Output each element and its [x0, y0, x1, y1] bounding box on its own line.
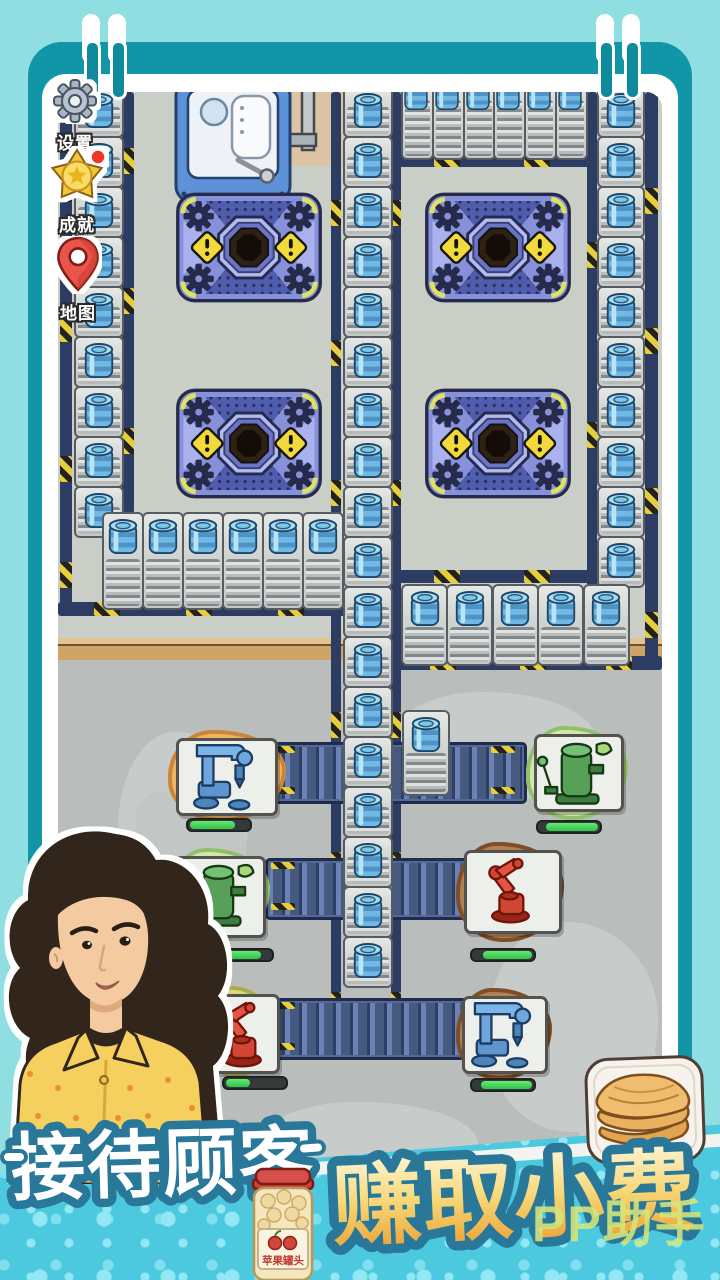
conveyor-rail — [645, 92, 658, 670]
hazard-stripe — [491, 787, 515, 794]
machine-drill-1[interactable] — [180, 736, 268, 814]
conveyor-plate — [597, 186, 645, 238]
crusher-3[interactable] — [422, 190, 574, 305]
plate-ridges — [306, 559, 340, 606]
barrel — [82, 440, 116, 482]
barrel — [604, 290, 638, 332]
barrel-icon — [351, 590, 385, 632]
barrel — [604, 140, 638, 182]
barrel-icon — [351, 92, 385, 132]
barrel-icon — [604, 490, 638, 532]
map-button[interactable]: 地图 — [40, 236, 116, 324]
barrel-icon — [351, 490, 385, 532]
hazard-stripe — [271, 903, 295, 910]
conveyor-plate — [182, 512, 224, 610]
conveyor-plate — [343, 186, 393, 238]
progress-fill — [546, 823, 598, 831]
barrel-icon — [464, 92, 492, 114]
barrel — [226, 516, 260, 558]
barrel — [351, 840, 385, 882]
hazard-stripe — [587, 422, 597, 448]
barrel-icon — [433, 92, 461, 114]
barrel-icon — [351, 440, 385, 482]
plate-ridges — [450, 627, 489, 662]
conveyor-plate — [343, 686, 393, 738]
barrel-icon — [146, 516, 180, 558]
barrel — [409, 714, 443, 756]
barrel-icon — [494, 92, 522, 114]
barrel-icon — [604, 440, 638, 482]
conveyor-plate — [597, 536, 645, 588]
conveyor-plate — [222, 512, 264, 610]
plate-ridges — [186, 559, 220, 606]
barrel — [351, 140, 385, 182]
conveyor-plate — [74, 336, 124, 388]
hazard-stripe — [434, 570, 460, 583]
hazard-stripe — [645, 328, 658, 354]
conveyor-plate — [597, 286, 645, 338]
barrel — [351, 240, 385, 282]
barrel-icon — [186, 516, 220, 558]
barrel — [544, 588, 578, 630]
conveyor-plate — [343, 886, 393, 938]
conveyor-plate — [492, 584, 539, 666]
barrel-icon — [351, 790, 385, 832]
machine-drill-2[interactable] — [458, 994, 546, 1072]
barrel — [351, 440, 385, 482]
barrel-icon — [525, 92, 553, 114]
progress-bar — [536, 820, 602, 834]
barrel-icon — [351, 740, 385, 782]
barrel-icon — [604, 190, 638, 232]
barrel-icon — [604, 290, 638, 332]
jar-label: 苹果罐头 — [262, 1254, 304, 1267]
machine-robot-1[interactable] — [466, 848, 554, 926]
conveyor-plate — [74, 436, 124, 488]
barrel-icon — [604, 240, 638, 282]
barrel — [604, 440, 638, 482]
barrel — [82, 390, 116, 432]
barrel — [351, 290, 385, 332]
conveyor-plate — [343, 536, 393, 588]
hazard-stripe — [645, 488, 658, 514]
barrel-icon — [351, 890, 385, 932]
gear-icon — [49, 78, 101, 124]
barrel — [402, 92, 430, 114]
conveyor-plate — [343, 286, 393, 338]
barrel — [464, 92, 492, 114]
conveyor-plate — [343, 836, 393, 888]
conveyor-plate — [343, 436, 393, 488]
barrel — [306, 516, 340, 558]
conveyor-plate — [302, 512, 344, 610]
conveyor-plate — [343, 336, 393, 388]
barrel — [494, 92, 522, 114]
barrel — [351, 590, 385, 632]
progress-fill — [481, 1081, 532, 1089]
hazard-stripe — [60, 456, 72, 482]
map-pin-icon — [54, 236, 102, 294]
binder-ring — [596, 14, 614, 100]
barrel — [351, 390, 385, 432]
plate-ridges — [146, 559, 180, 606]
settings-button[interactable]: 设置 — [36, 78, 114, 154]
machine-boiler-1[interactable] — [532, 732, 620, 810]
conveyor-plate — [343, 636, 393, 688]
barrel-icon — [106, 516, 140, 558]
conveyor-plate — [343, 486, 393, 538]
conveyor-plate — [597, 336, 645, 388]
barrel-icon — [351, 840, 385, 882]
barrel — [82, 340, 116, 382]
barrel — [351, 340, 385, 382]
barrel-icon — [226, 516, 260, 558]
barrel — [408, 588, 442, 630]
barrel — [453, 588, 487, 630]
barrel-icon — [306, 516, 340, 558]
achievement-star-icon — [45, 146, 109, 206]
barrel — [604, 190, 638, 232]
barrel-icon — [402, 92, 430, 114]
barrel-icon — [351, 240, 385, 282]
crusher-4[interactable] — [422, 386, 574, 501]
barrel-icon — [351, 190, 385, 232]
achievements-button[interactable]: 成就 — [34, 146, 120, 236]
achievements-label: 成就 — [34, 211, 120, 236]
conveyor-plate — [597, 386, 645, 438]
barrel-icon — [266, 516, 300, 558]
conveyor-plate — [142, 512, 184, 610]
map-label: 地图 — [40, 299, 116, 324]
barrel — [351, 540, 385, 582]
conveyor-plate — [583, 584, 630, 666]
hazard-stripe — [331, 480, 341, 506]
barrel — [351, 890, 385, 932]
notification-dot — [91, 150, 106, 165]
plate-ridges — [587, 627, 626, 662]
barrel — [351, 92, 385, 132]
hazard-stripe — [645, 612, 658, 638]
conveyor-plate — [402, 710, 450, 796]
plate-ridges — [226, 559, 260, 606]
hazard-stripe — [331, 340, 341, 366]
barrel-icon — [351, 640, 385, 682]
barrel-icon — [351, 940, 385, 982]
hazard-stripe — [524, 570, 550, 583]
plate-ridges — [406, 753, 446, 792]
barrel-icon — [589, 588, 623, 630]
watermark: PP助手 — [532, 1184, 720, 1256]
barrel — [604, 340, 638, 382]
barrel-icon — [556, 92, 584, 114]
binder-ring — [622, 14, 640, 100]
conveyor-plate — [597, 486, 645, 538]
conveyor-plate — [262, 512, 304, 610]
plate-ridges — [106, 559, 140, 606]
conveyor-plate — [102, 512, 144, 610]
barrel — [351, 790, 385, 832]
barrel-icon — [351, 140, 385, 182]
barrel — [525, 92, 553, 114]
conveyor-plate — [343, 386, 393, 438]
hazard-stripe — [491, 746, 515, 753]
barrel-icon — [453, 588, 487, 630]
plate-ridges — [496, 627, 535, 662]
barrel — [433, 92, 461, 114]
crusher-2[interactable] — [173, 386, 325, 501]
barrel-icon — [604, 340, 638, 382]
hazard-stripe — [331, 200, 341, 226]
barrel — [351, 190, 385, 232]
barrel-icon — [351, 690, 385, 732]
barrel — [351, 940, 385, 982]
plate-ridges — [405, 627, 444, 662]
conveyor-plate — [343, 236, 393, 288]
conveyor-plate — [537, 584, 584, 666]
conveyor-plate — [343, 92, 393, 138]
barrel-icon — [409, 714, 443, 756]
conveyor-plate — [74, 386, 124, 438]
hazard-stripe — [271, 862, 295, 869]
hazard-stripe — [60, 562, 72, 588]
progress-bar — [470, 948, 536, 962]
barrel — [266, 516, 300, 558]
conveyor-plate — [343, 586, 393, 638]
barrel-icon — [82, 390, 116, 432]
barrel — [604, 490, 638, 532]
barrel-icon — [408, 588, 442, 630]
barrel-icon — [82, 440, 116, 482]
barrel — [146, 516, 180, 558]
conveyor-rail — [399, 570, 593, 583]
conveyor-plate — [343, 736, 393, 788]
barrel — [498, 588, 532, 630]
conveyor-belt — [265, 742, 527, 804]
barrel — [604, 540, 638, 582]
app-root: 设置 成就 地图 — [0, 0, 720, 1280]
conveyor-plate — [401, 584, 448, 666]
barrel-icon — [498, 588, 532, 630]
barrel-icon — [351, 340, 385, 382]
conveyor-plate — [597, 136, 645, 188]
conveyor-plate — [597, 236, 645, 288]
barrel-icon — [544, 588, 578, 630]
barrel — [351, 740, 385, 782]
barrel-icon — [351, 390, 385, 432]
plate-ridges — [541, 627, 580, 662]
barrel — [186, 516, 220, 558]
barrel — [604, 390, 638, 432]
conveyor-plate — [446, 584, 493, 666]
barrel-icon — [82, 340, 116, 382]
barrel-icon — [604, 140, 638, 182]
conveyor-plate — [343, 936, 393, 988]
conveyor-plate — [343, 786, 393, 838]
barrel — [351, 690, 385, 732]
barrel — [556, 92, 584, 114]
barrel-icon — [351, 540, 385, 582]
barrel-icon — [604, 540, 638, 582]
barrel — [351, 640, 385, 682]
banner-dash — [0, 1149, 28, 1165]
progress-bar — [470, 1078, 536, 1092]
barrel — [589, 588, 623, 630]
barrel — [106, 516, 140, 558]
barrel — [351, 490, 385, 532]
hazard-stripe — [587, 242, 597, 268]
barrel-icon — [351, 290, 385, 332]
hazard-stripe — [645, 188, 658, 214]
barrel — [604, 240, 638, 282]
hazard-stripe — [331, 712, 341, 738]
conveyor-plate — [597, 436, 645, 488]
progress-fill — [483, 951, 532, 959]
conveyor-rail — [587, 92, 597, 604]
barrel-icon — [604, 390, 638, 432]
crusher-1[interactable] — [173, 190, 325, 305]
plate-ridges — [266, 559, 300, 606]
conveyor-plate — [343, 136, 393, 188]
